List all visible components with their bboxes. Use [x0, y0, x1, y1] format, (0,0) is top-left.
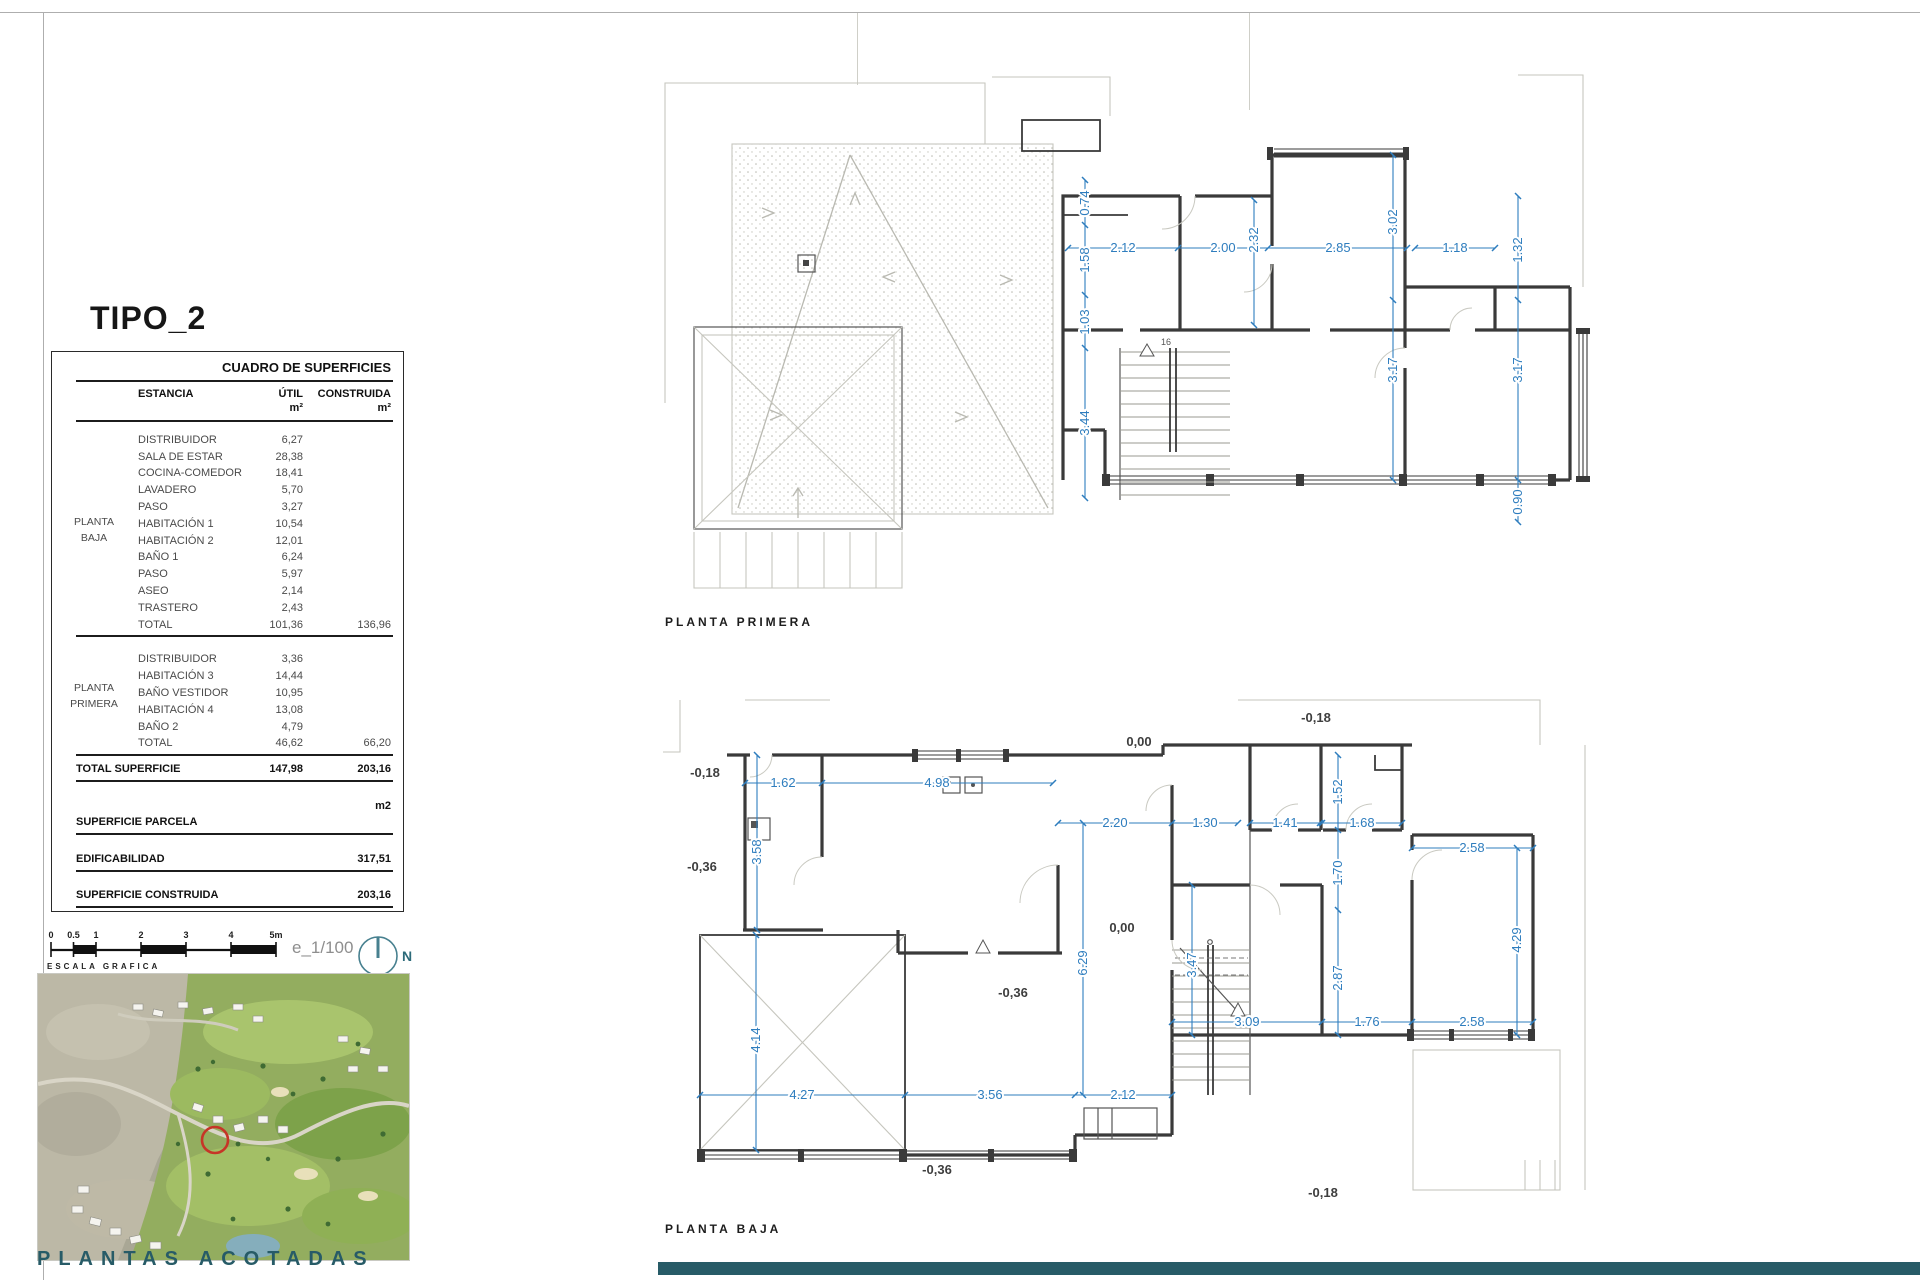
level-label: 0,00 — [1109, 920, 1134, 935]
dim-label: 1.76 — [1354, 1014, 1379, 1029]
entrance-marker — [976, 940, 990, 953]
table-row: TRASTERO2,43 — [138, 600, 393, 617]
unit-util: m² — [253, 403, 315, 417]
table-row: HABITACIÓN 413,08 — [138, 702, 393, 719]
col-construida: CONSTRUIDA — [315, 386, 393, 403]
table-row: DISTRIBUIDOR3,36 — [138, 651, 393, 668]
dim-label: 3.09 — [1234, 1014, 1259, 1029]
dim-label: 1.58 — [1077, 247, 1092, 272]
table-row: DISTRIBUIDOR6,27 — [138, 432, 393, 449]
level-label: -0,18 — [1308, 1185, 1338, 1200]
surface-table: CUADRO DE SUPERFICIES ESTANCIA ÚTIL CONS… — [51, 351, 404, 912]
scale-ratio: e_1/100 — [292, 938, 353, 958]
scale-tick: 4 — [228, 930, 233, 940]
sheet-frame-top — [0, 12, 1920, 13]
terrace — [700, 935, 905, 1150]
scale-tick: 2 — [138, 930, 143, 940]
dimensions: 1.62 4.98 2.20 1.30 1.41 1.68 1.52 1.70 … — [700, 755, 1533, 1150]
dim-label: 0.90 — [1510, 489, 1525, 514]
scale-tick: 0 — [48, 930, 53, 940]
stair-count-label: 16 — [1161, 337, 1171, 347]
col-estancia: ESTANCIA — [138, 386, 253, 403]
walls — [1022, 120, 1570, 480]
table-total-row: TOTAL46,6266,20 — [138, 735, 393, 752]
dim-label: 2.32 — [1246, 227, 1261, 252]
fixtures — [748, 777, 1157, 1139]
superficie-construida-row: SUPERFICIE CONSTRUIDA 203,16 — [76, 887, 393, 904]
edificabilidad-row: EDIFICABILIDAD 317,51 — [76, 851, 393, 868]
dim-label: 1.03 — [1077, 309, 1092, 334]
table-title: CUADRO DE SUPERFICIES — [62, 352, 393, 380]
north-label: N — [402, 948, 412, 964]
table-row: HABITACIÓN 314,44 — [138, 668, 393, 685]
footer-bar — [658, 1262, 1920, 1275]
level-label: -0,36 — [687, 859, 717, 874]
planta-baja-label: PLANTA BAJA — [665, 1222, 781, 1236]
dim-label: 2.58 — [1459, 1014, 1484, 1029]
dim-label: 2.20 — [1102, 815, 1127, 830]
dim-label: 2.58 — [1459, 840, 1484, 855]
dim-label: 3.58 — [749, 839, 764, 864]
scale-tick: 0.5 — [67, 930, 80, 940]
dim-label: 4.98 — [924, 775, 949, 790]
planta-primera-drawing: 16 2.12 2.00 2.85 1.18 0.74 1.58 — [650, 50, 1590, 645]
dim-label: 2.00 — [1210, 240, 1235, 255]
table-row: BAÑO 24,79 — [138, 719, 393, 736]
table-total-row: TOTAL101,36136,96 — [138, 617, 393, 634]
dim-label: 3.56 — [977, 1087, 1002, 1102]
table-row: SALA DE ESTAR28,38 — [138, 449, 393, 466]
drawing-sheet: TIPO_2 CUADRO DE SUPERFICIES ESTANCIA ÚT… — [0, 0, 1920, 1280]
dim-label: 4.14 — [748, 1027, 763, 1052]
table-row: HABITACIÓN 110,54 — [138, 516, 393, 533]
dim-label: 2.85 — [1325, 240, 1350, 255]
total-superficie-row: TOTAL SUPERFICIE 147,98 203,16 — [76, 761, 393, 778]
table-row: PASO3,27 — [138, 499, 393, 516]
dim-label: 2.87 — [1330, 965, 1345, 990]
level-label: -0,36 — [998, 985, 1028, 1000]
dim-label: 3.44 — [1077, 410, 1092, 435]
table-row: BAÑO 16,24 — [138, 549, 393, 566]
group-label-planta-primera: PLANTA PRIMERA — [62, 680, 126, 713]
level-label: -0,18 — [1301, 710, 1331, 725]
page-title: TIPO_2 — [90, 300, 206, 337]
dimensions: 2.12 2.00 2.85 1.18 0.74 1.58 1.03 3.44 … — [1068, 155, 1525, 522]
scale-tick: 3 — [183, 930, 188, 940]
scale-tick: 1 — [93, 930, 98, 940]
dim-label: 3.17 — [1510, 357, 1525, 382]
dim-label: 3.17 — [1385, 357, 1400, 382]
dim-label: 4.27 — [789, 1087, 814, 1102]
dim-label: 1.30 — [1192, 815, 1217, 830]
roof-hatch — [732, 144, 1053, 514]
col-util: ÚTIL — [253, 386, 315, 403]
dim-label: 6.29 — [1075, 950, 1090, 975]
dim-label: 4.29 — [1509, 927, 1524, 952]
group-label-planta-baja: PLANTA BAJA — [62, 514, 126, 547]
dim-label: 2.12 — [1110, 240, 1135, 255]
dim-label: 3.02 — [1385, 209, 1400, 234]
site-map — [37, 973, 410, 1261]
planta-primera-label: PLANTA PRIMERA — [665, 615, 813, 629]
table-row: COCINA-COMEDOR18,41 — [138, 465, 393, 482]
scale-caption: ESCALA GRAFICA — [47, 962, 160, 971]
table-row: HABITACIÓN 212,01 — [138, 533, 393, 550]
table-row: BAÑO VESTIDOR10,95 — [138, 685, 393, 702]
scale-tick: 5m — [269, 930, 282, 940]
level-label: 0,00 — [1126, 734, 1151, 749]
table-row: LAVADERO5,70 — [138, 482, 393, 499]
dim-label: 2.12 — [1110, 1087, 1135, 1102]
superficie-parcela-row: SUPERFICIE PARCELA — [76, 814, 393, 831]
unit-note: m2 — [62, 798, 393, 814]
planta-baja-drawing: 1.62 4.98 2.20 1.30 1.41 1.68 1.52 1.70 … — [650, 690, 1590, 1250]
dim-label: 1.52 — [1330, 779, 1345, 804]
dim-label: 1.68 — [1349, 815, 1374, 830]
unit-construida: m² — [315, 403, 393, 417]
level-label: -0,18 — [690, 765, 720, 780]
dim-label: 3.47 — [1184, 952, 1199, 977]
table-row: PASO5,97 — [138, 566, 393, 583]
dim-label: 1.18 — [1442, 240, 1467, 255]
sheet-title: PLANTAS ACOTADAS — [37, 1248, 375, 1271]
table-row: ASEO2,14 — [138, 583, 393, 600]
dim-label: 1.70 — [1330, 860, 1345, 885]
dim-label: 0.74 — [1077, 190, 1092, 215]
dim-label: 1.32 — [1510, 237, 1525, 262]
level-label: -0,36 — [922, 1162, 952, 1177]
dim-label: 1.62 — [770, 775, 795, 790]
dim-label: 1.41 — [1272, 815, 1297, 830]
